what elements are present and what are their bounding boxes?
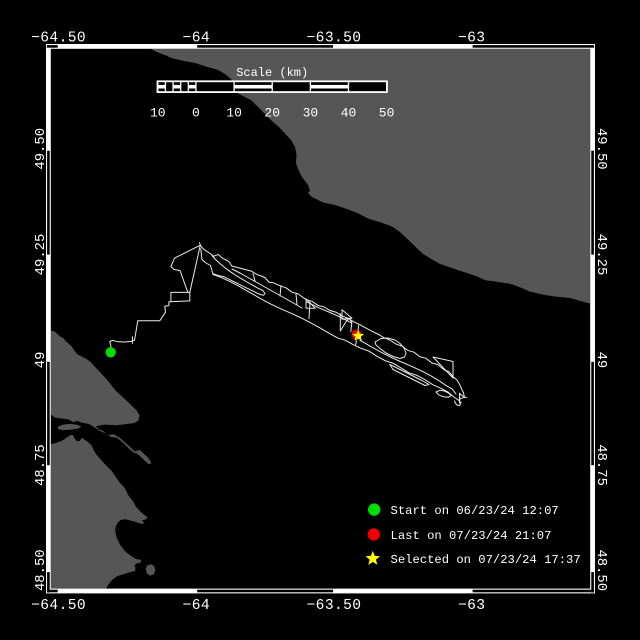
svg-text:48.50: 48.50 — [593, 549, 609, 591]
svg-text:48.50: 48.50 — [33, 549, 49, 591]
svg-text:30: 30 — [303, 106, 319, 121]
svg-text:48.75: 48.75 — [593, 444, 609, 486]
svg-text:−63.50: −63.50 — [307, 30, 362, 46]
svg-text:10: 10 — [226, 106, 242, 121]
svg-text:49.25: 49.25 — [33, 234, 49, 276]
svg-text:49.25: 49.25 — [593, 234, 609, 276]
svg-text:−64: −64 — [183, 598, 210, 614]
svg-text:−63: −63 — [458, 598, 485, 614]
svg-text:49.50: 49.50 — [593, 128, 609, 170]
svg-text:Scale (km): Scale (km) — [236, 66, 308, 80]
svg-text:−64: −64 — [183, 30, 210, 46]
svg-text:−64.50: −64.50 — [31, 30, 86, 46]
svg-text:49.50: 49.50 — [33, 128, 49, 170]
svg-text:10: 10 — [150, 106, 166, 121]
svg-text:49: 49 — [33, 352, 49, 369]
svg-text:−63: −63 — [458, 30, 485, 46]
svg-text:20: 20 — [264, 106, 280, 121]
svg-text:Last on 07/23/24 21:07: Last on 07/23/24 21:07 — [391, 529, 552, 543]
svg-text:50: 50 — [379, 106, 395, 121]
svg-text:40: 40 — [341, 106, 357, 121]
svg-text:48.75: 48.75 — [33, 444, 49, 486]
svg-text:Start on 06/23/24 12:07: Start on 06/23/24 12:07 — [391, 504, 559, 518]
svg-text:49: 49 — [593, 352, 609, 369]
svg-text:−64.50: −64.50 — [31, 598, 86, 614]
svg-text:0: 0 — [192, 106, 200, 121]
svg-text:Selected on 07/23/24 17:37: Selected on 07/23/24 17:37 — [391, 553, 581, 567]
svg-text:−63.50: −63.50 — [307, 598, 362, 614]
